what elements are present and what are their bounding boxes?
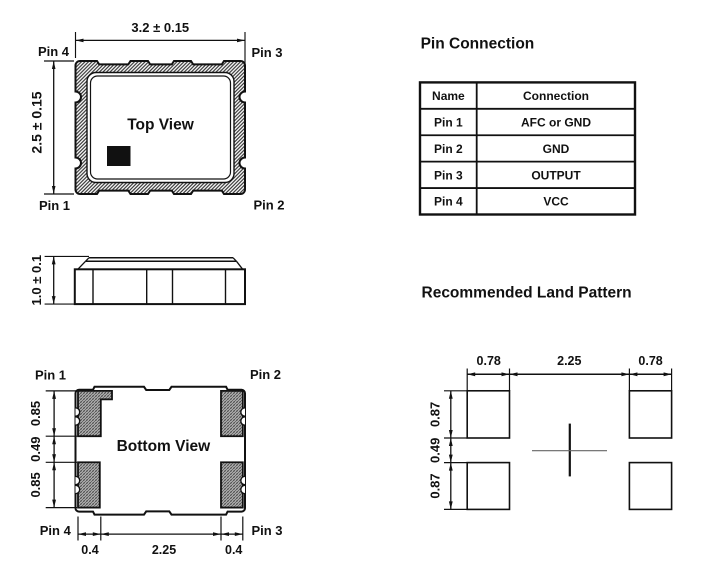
svg-text:Pin 2: Pin 2 bbox=[250, 367, 281, 382]
svg-text:Name: Name bbox=[432, 89, 465, 103]
svg-text:3.2 ± 0.15: 3.2 ± 0.15 bbox=[131, 20, 189, 35]
svg-text:Pin 1: Pin 1 bbox=[35, 368, 66, 383]
svg-text:0.49: 0.49 bbox=[28, 437, 43, 462]
svg-text:Pin 2: Pin 2 bbox=[253, 198, 284, 213]
svg-text:0.4: 0.4 bbox=[225, 543, 242, 557]
svg-text:0.78: 0.78 bbox=[477, 354, 501, 368]
svg-text:Pin 1: Pin 1 bbox=[39, 198, 70, 213]
svg-text:OUTPUT: OUTPUT bbox=[531, 168, 581, 182]
svg-text:0.87: 0.87 bbox=[428, 402, 443, 427]
svg-text:Pin 4: Pin 4 bbox=[434, 195, 463, 209]
svg-text:0.85: 0.85 bbox=[28, 401, 43, 426]
svg-text:2.5 ± 0.15: 2.5 ± 0.15 bbox=[29, 91, 45, 153]
svg-text:Connection: Connection bbox=[523, 89, 589, 103]
svg-text:Pin 3: Pin 3 bbox=[251, 523, 282, 538]
svg-text:Top View: Top View bbox=[127, 117, 195, 134]
svg-text:0.4: 0.4 bbox=[81, 543, 98, 557]
svg-text:Pin 3: Pin 3 bbox=[434, 168, 463, 182]
svg-text:2.25: 2.25 bbox=[557, 354, 581, 368]
svg-text:Pin 1: Pin 1 bbox=[434, 115, 463, 129]
svg-text:1.0 ± 0.1: 1.0 ± 0.1 bbox=[29, 255, 44, 306]
svg-text:Pin 2: Pin 2 bbox=[434, 142, 463, 156]
svg-text:Pin Connection: Pin Connection bbox=[421, 36, 535, 53]
svg-text:Pin 3: Pin 3 bbox=[251, 45, 282, 60]
svg-text:AFC or GND: AFC or GND bbox=[521, 115, 591, 129]
svg-text:VCC: VCC bbox=[543, 195, 569, 209]
svg-text:0.49: 0.49 bbox=[428, 438, 443, 463]
svg-text:GND: GND bbox=[543, 142, 570, 156]
svg-text:Recommended Land Pattern: Recommended Land Pattern bbox=[422, 285, 632, 302]
svg-text:Pin 4: Pin 4 bbox=[38, 44, 70, 59]
svg-text:0.85: 0.85 bbox=[28, 472, 43, 497]
svg-text:Bottom View: Bottom View bbox=[117, 438, 212, 455]
svg-text:Pin 4: Pin 4 bbox=[40, 523, 72, 538]
svg-text:0.78: 0.78 bbox=[638, 354, 662, 368]
svg-text:2.25: 2.25 bbox=[152, 543, 176, 557]
svg-text:0.87: 0.87 bbox=[428, 473, 443, 498]
